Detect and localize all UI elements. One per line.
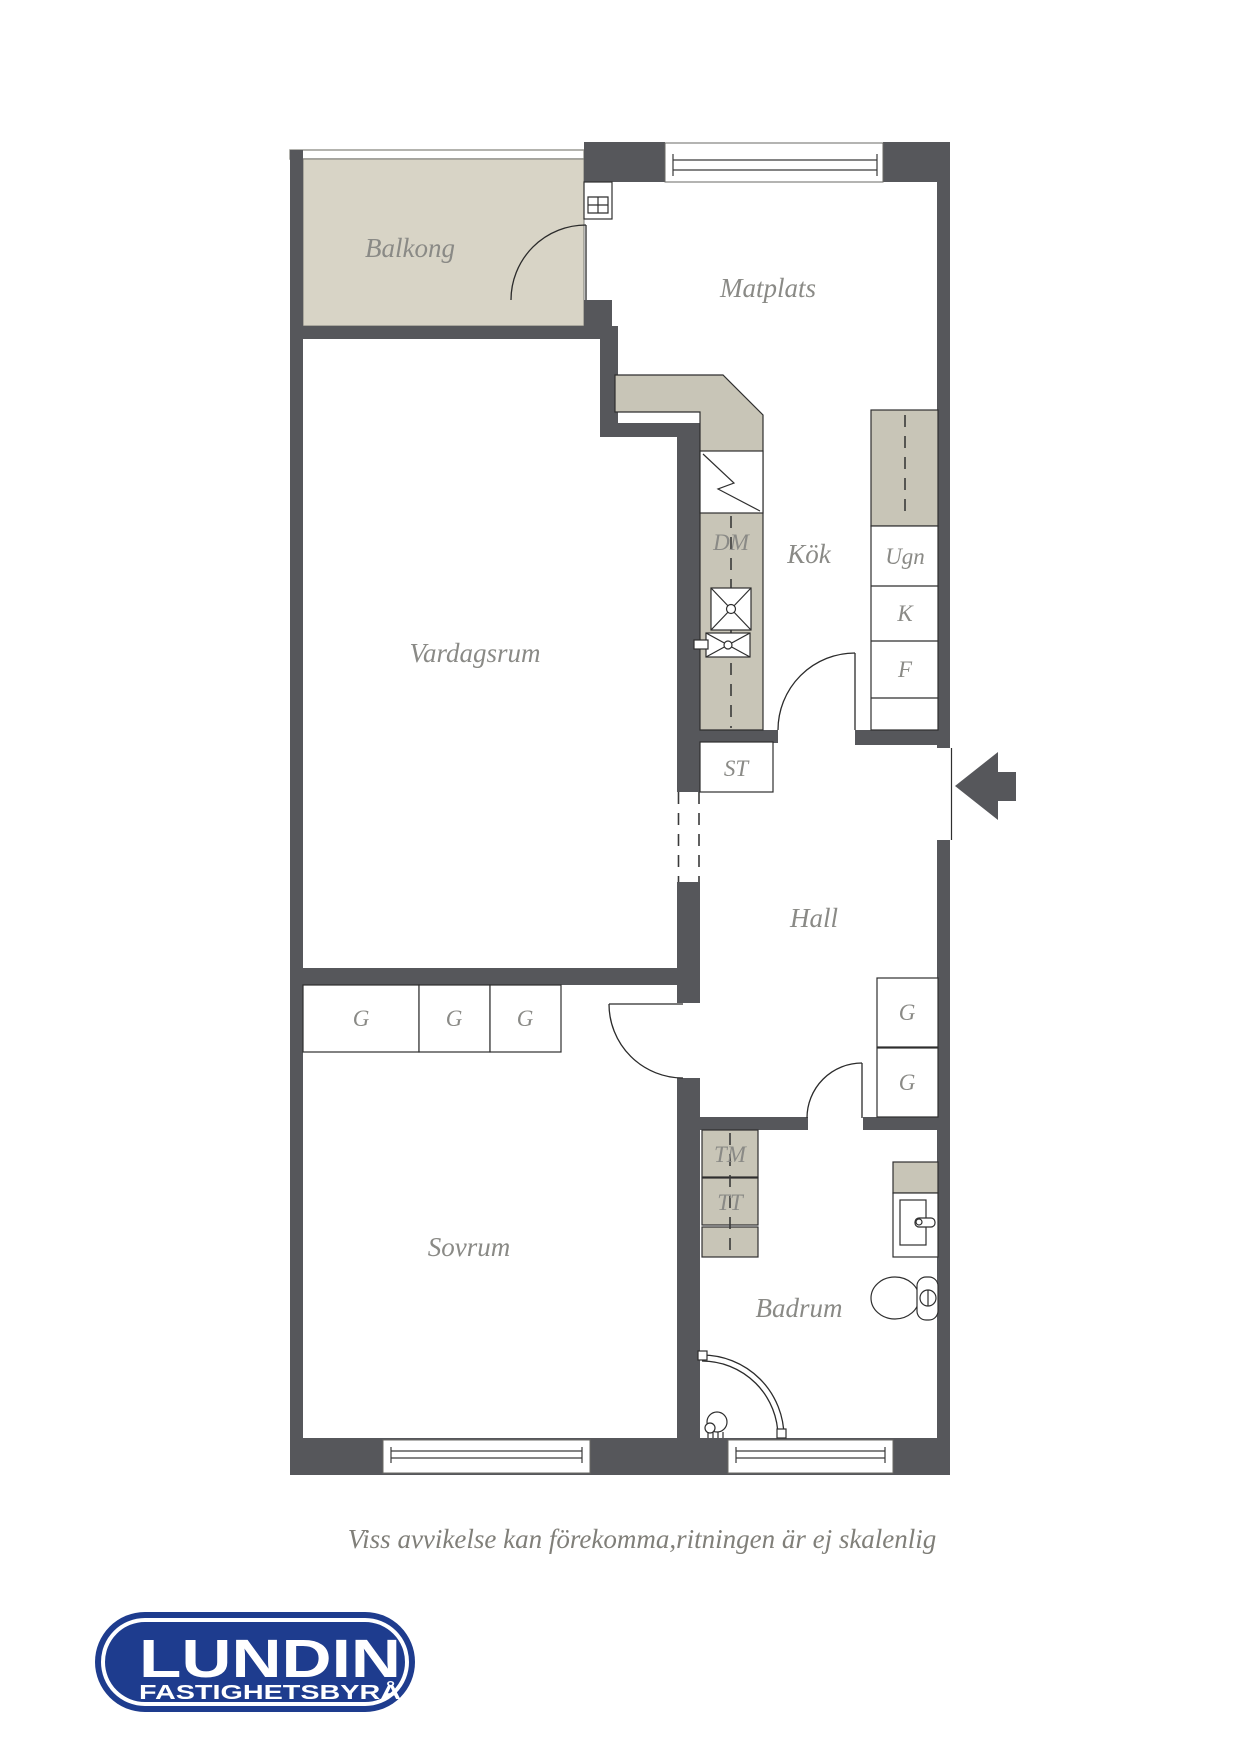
entry-arrow-icon [955, 752, 1016, 820]
dryer-label: TT [717, 1190, 745, 1215]
wall-living-bedroom [290, 968, 683, 985]
room-label-bedroom: Sovrum [428, 1232, 511, 1262]
laundry-column: TM TT [702, 1130, 758, 1257]
wall-left [290, 150, 303, 1475]
balcony-railing [290, 150, 584, 159]
cleaning-closet-label: ST [724, 756, 751, 781]
wall-right-lower [937, 840, 950, 1475]
washing-machine-label: TM [714, 1142, 748, 1167]
room-label-hall: Hall [789, 903, 838, 933]
wall-kitchen-bottom-left [700, 730, 778, 743]
hall-wardrobe-label-1: G [899, 1000, 916, 1025]
freezer-label: F [897, 657, 913, 682]
wall-living-kitchen-step [600, 423, 678, 437]
dishwasher-label: DM [712, 530, 751, 555]
room-label-balcony: Balkong [365, 233, 455, 263]
room-label-kitchen: Kök [786, 539, 832, 569]
wall-balcony-bottom [290, 326, 618, 339]
wall-kitchen-bottom-right [855, 730, 950, 745]
hall-closets: G G [877, 978, 938, 1117]
kitchen-door [778, 653, 855, 730]
hall-wardrobe-label-2: G [899, 1070, 916, 1095]
bedroom-door [609, 1004, 683, 1078]
bedroom-wardrobe-label-1: G [353, 1006, 370, 1031]
logo-tagline: FASTIGHETSBYRÅ [139, 1680, 401, 1704]
wall-right-upper [937, 142, 950, 748]
wall-bedroom-bathroom [677, 1078, 700, 1438]
wall-hall-bathroom-right [863, 1117, 950, 1130]
wall-balcony-door-stub [584, 300, 612, 339]
walls [290, 142, 950, 1475]
bedroom-wardrobe-label-2: G [446, 1006, 463, 1031]
window-bathroom [728, 1440, 893, 1473]
wall-top-block [584, 142, 665, 182]
window-bedroom [383, 1440, 590, 1473]
oven-label: Ugn [885, 544, 925, 569]
floorplan-page: Ugn K F DM ST G G G G G [0, 0, 1240, 1755]
bathroom-sink-icon [893, 1162, 938, 1257]
living-hall-opening [679, 792, 700, 882]
bedroom-closets: G G G [303, 985, 561, 1052]
fridge-label: K [896, 601, 914, 626]
room-label-dining: Matplats [719, 273, 816, 303]
bathroom-door [807, 1063, 862, 1118]
wall-hall-bathroom-left [700, 1117, 808, 1130]
lundin-logo: LUNDIN FASTIGHETSBYRÅ [95, 1612, 415, 1712]
wall-living-hall-upper [677, 423, 700, 792]
disclaimer-text: Viss avvikelse kan förekomma,ritningen ä… [348, 1524, 937, 1554]
toilet-icon [871, 1277, 938, 1320]
shower-icon [698, 1351, 786, 1438]
logo-name: LUNDIN [139, 1629, 401, 1689]
stove-icon [700, 451, 763, 513]
room-label-bathroom: Badrum [756, 1293, 843, 1323]
window-dining [665, 143, 883, 182]
floorplan-drawing: Ugn K F DM ST G G G G G [0, 0, 1240, 1755]
bedroom-wardrobe-label-3: G [517, 1006, 534, 1031]
windows [383, 143, 893, 1473]
room-label-living: Vardagsrum [409, 638, 540, 668]
